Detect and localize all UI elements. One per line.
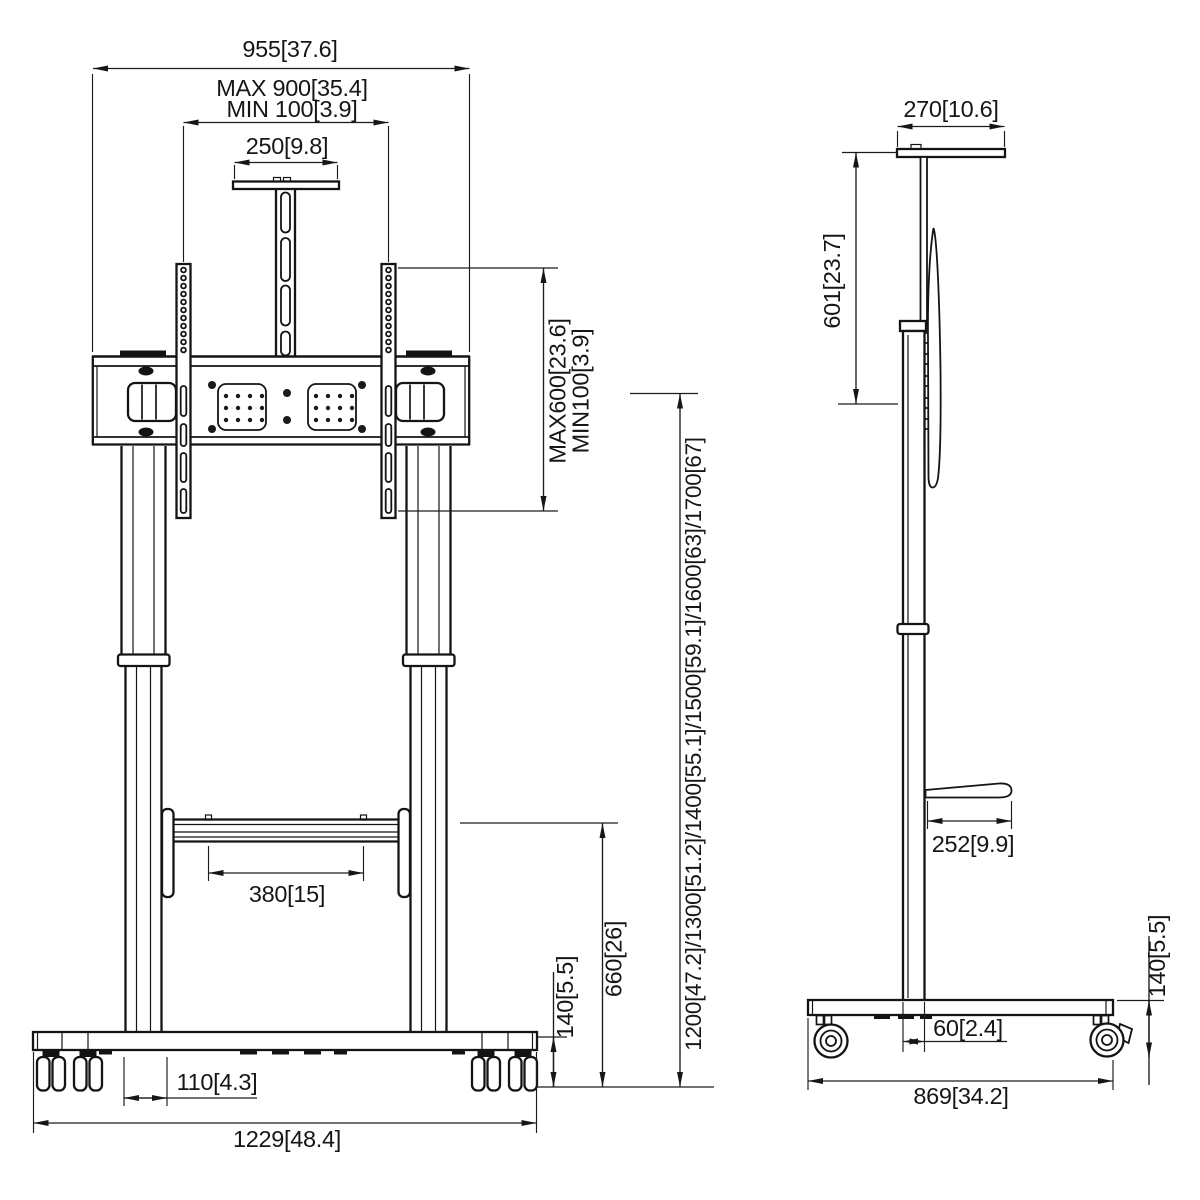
caster-front-3: [472, 1051, 500, 1091]
top-camera-shelf: [233, 178, 339, 190]
dim-label-leg-inset: 110[4.3]: [177, 1069, 258, 1095]
dim-base-height-side: 140[5.5]: [1117, 915, 1170, 1085]
center-column-front: [276, 189, 295, 356]
technical-drawing-page: 955[37.6] MAX 900[35.4] MIN 100[3.9] 250…: [0, 0, 1200, 1200]
leg-right: [403, 446, 455, 1032]
handle-right: [396, 383, 444, 421]
dim-label-base-depth: 869[34.2]: [913, 1083, 1008, 1109]
caster-front-2: [74, 1051, 102, 1091]
dim-label-shelf-depth: 252[9.9]: [932, 831, 1015, 857]
dim-label-overall-width: 955[37.6]: [242, 36, 337, 62]
dim-base-height-front: 140[5.5]: [538, 956, 578, 1087]
pole-side: [898, 157, 929, 1002]
caster-front-1: [37, 1051, 65, 1091]
caster-front-4: [509, 1051, 537, 1091]
dim-label-vesa-height-min: MIN100[3.9]: [568, 329, 594, 454]
dim-top-shelf-depth: 270[10.6]: [898, 96, 1005, 147]
dim-shelf-clear-width: 380[15]: [209, 846, 364, 907]
dim-base-width: 1229[48.4]: [34, 1052, 537, 1152]
top-camera-shelf-side: [897, 145, 1005, 158]
dim-vesa-width: MAX 900[35.4] MIN 100[3.9]: [184, 75, 389, 262]
vesa-rail-left: [177, 264, 191, 518]
pole-collar-side: [898, 624, 929, 634]
base-front: [33, 1032, 537, 1055]
dim-label-base-width: 1229[48.4]: [233, 1126, 341, 1152]
shelf-bracket-side: [926, 783, 1012, 797]
dim-label-vesa-width-min: MIN 100[3.9]: [227, 96, 358, 122]
dim-label-column-heights: 1200[47.2]/1300[51.2]/1400[55.1]/1500[59…: [681, 437, 706, 1051]
bracket-cap: [900, 321, 926, 331]
vesa-rail-right: [382, 264, 396, 518]
tv-cart-dimension-drawing: 955[37.6] MAX 900[35.4] MIN 100[3.9] 250…: [0, 0, 1200, 1200]
shelf-end-cap-left: [162, 809, 174, 897]
caster-side-left: [815, 1016, 848, 1058]
dim-label-shelf-floor-height: 660[26]: [601, 921, 627, 997]
leg-left: [118, 446, 170, 1032]
dim-leg-inset: 110[4.3]: [124, 1057, 257, 1106]
display-panel-side: [928, 228, 941, 488]
dim-label-column-offset: 60[2.4]: [933, 1015, 1003, 1041]
mount-hole-panel-right: [308, 384, 356, 430]
column-side: [903, 331, 925, 1002]
dim-label-top-shelf-depth: 270[10.6]: [903, 96, 998, 122]
shelf-end-cap-right: [399, 809, 411, 897]
dim-camera-shelf-width: 250[9.8]: [235, 133, 338, 179]
dim-label-camera-shelf-width: 250[9.8]: [246, 133, 329, 159]
dim-label-shelf-clear-width: 380[15]: [249, 881, 325, 907]
leg-right-collar: [403, 655, 455, 667]
dim-label-base-height-side: 140[5.5]: [1144, 915, 1170, 998]
dim-drop-height: 601[23.7]: [819, 153, 898, 405]
crossbar-beam: [92, 351, 470, 446]
front-view: [33, 178, 537, 1091]
dim-label-drop-height: 601[23.7]: [819, 233, 845, 328]
caster-side-right: [1091, 1016, 1133, 1057]
mount-hole-panel-left: [218, 384, 266, 430]
handle-left: [128, 383, 176, 421]
leg-left-collar: [118, 655, 170, 667]
dim-label-base-height-front: 140[5.5]: [552, 956, 578, 1039]
dim-shelf-depth: 252[9.9]: [928, 801, 1015, 857]
